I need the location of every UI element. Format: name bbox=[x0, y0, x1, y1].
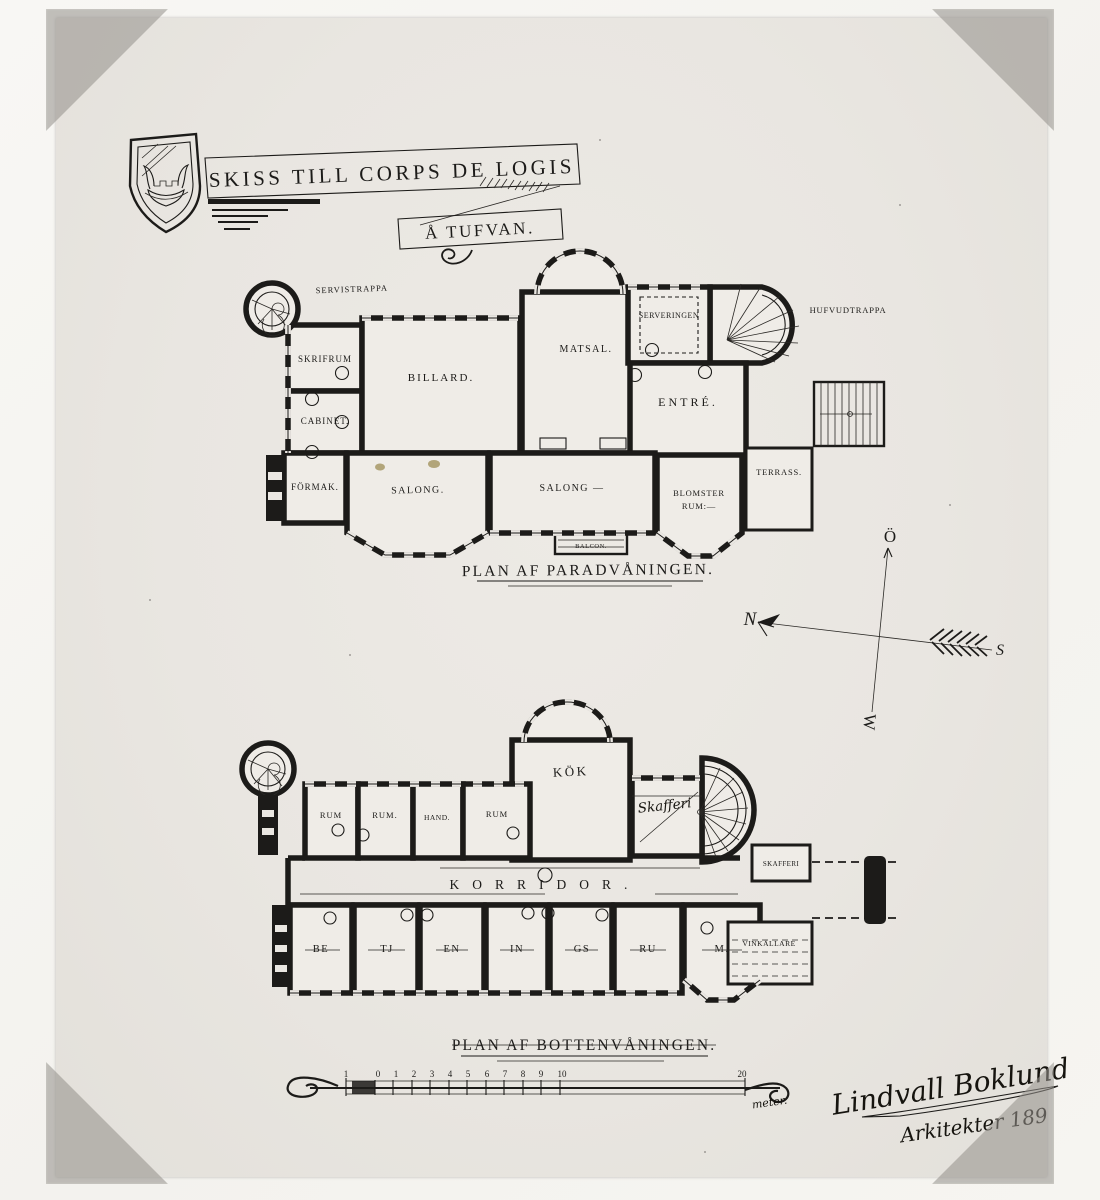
room-label-hand: HAND. bbox=[424, 813, 450, 822]
scale-number: 0 bbox=[376, 1069, 381, 1079]
scale-number: 2 bbox=[412, 1069, 417, 1079]
compass-north: N bbox=[743, 609, 758, 630]
photograph-of-architectural-drawing: SKISS TILL CORPS DE LOGIS Å TUFVAN. bbox=[0, 0, 1100, 1200]
room-label-betjenings-3: EN bbox=[444, 944, 461, 955]
scale-number: 6 bbox=[485, 1069, 490, 1079]
scale-bar: 1 0 1 2 3 4 5 6 7 8 9 10 20 meter. bbox=[288, 1069, 789, 1111]
room-label-korridor: KORRIDOR. bbox=[450, 877, 641, 892]
compass-west: W bbox=[859, 713, 879, 732]
scale-number: 9 bbox=[539, 1069, 544, 1079]
room-label-skrifrum: SKRIFRUM bbox=[298, 354, 352, 364]
room-label-entre: ENTRÉ. bbox=[658, 395, 718, 409]
room-label-betjenings-1: BE bbox=[313, 944, 329, 955]
scale-number: 5 bbox=[466, 1069, 471, 1079]
drawing-subtitle: Å TUFVAN. bbox=[425, 218, 536, 243]
scale-number: 10 bbox=[558, 1069, 568, 1079]
room-label-rum2: RUM. bbox=[372, 810, 398, 820]
room-label-salong-right: SALONG — bbox=[539, 483, 604, 494]
room-label-servistrappa: SERVISTRAPPA bbox=[316, 283, 389, 296]
room-label-vinkallare: VINKÄLLARE bbox=[742, 939, 795, 948]
upper-floor-plan: SERVISTRAPPA SKRIFRUM CABINET. FÖRMAK. B… bbox=[246, 251, 886, 586]
room-label-kok: KÖK bbox=[553, 763, 589, 780]
room-label-betjenings-6: RU bbox=[639, 944, 657, 955]
lower-floor-plan: KÖK Skafferi RUM RUM. HAND. RUM KORRIDOR… bbox=[242, 702, 898, 1061]
scale-number: 1 bbox=[344, 1069, 349, 1079]
room-label-balcon: BALCON. bbox=[575, 543, 607, 550]
subtitle-banner: Å TUFVAN. bbox=[398, 209, 563, 264]
room-label-betjenings-7: M. bbox=[715, 944, 730, 955]
room-label-formak: FÖRMAK. bbox=[291, 482, 339, 492]
scale-number: 20 bbox=[738, 1069, 748, 1079]
room-label-rum1: RUM bbox=[320, 810, 342, 820]
scale-number: 3 bbox=[430, 1069, 435, 1079]
scale-number: 4 bbox=[448, 1069, 453, 1079]
room-label-rum3: RUM bbox=[486, 809, 508, 819]
lower-plan-caption: PLAN AF BOTTENVÅNINGEN. bbox=[452, 1037, 717, 1054]
floor-plan-drawing: SKISS TILL CORPS DE LOGIS Å TUFVAN. bbox=[0, 0, 1100, 1200]
scale-number: 8 bbox=[521, 1069, 526, 1079]
compass-east: Ö bbox=[884, 527, 896, 546]
room-label-skafferi-small: SKAFFERI bbox=[763, 860, 800, 868]
upper-plan-caption: PLAN AF PARADVÅNINGEN. bbox=[462, 561, 715, 580]
compass-rose: N S Ö W bbox=[743, 527, 1004, 732]
room-label-terrass: TERRASS. bbox=[756, 467, 802, 477]
scale-number: 7 bbox=[503, 1069, 508, 1079]
room-label-hufvudtrappa: HUFVUDTRAPPA bbox=[810, 305, 887, 315]
room-label-betjenings-5: GS bbox=[574, 944, 590, 955]
room-label-salong-left: SALONG. bbox=[391, 485, 445, 497]
room-label-serveringen: SERVERINGEN bbox=[639, 311, 699, 320]
title-banner: SKISS TILL CORPS DE LOGIS bbox=[205, 144, 580, 229]
room-label-betjenings-2: TJ bbox=[380, 944, 394, 955]
room-label-blomster-1: BLOMSTER bbox=[673, 488, 725, 498]
coat-of-arms-shield bbox=[130, 134, 200, 232]
compass-south: S bbox=[996, 642, 1004, 659]
room-label-billard: BILLARD. bbox=[408, 372, 474, 384]
room-label-blomster-2: RUM:— bbox=[682, 501, 716, 511]
scale-number: 1 bbox=[394, 1069, 399, 1079]
room-label-matsal: MATSAL. bbox=[559, 344, 612, 355]
room-label-cabinet: CABINET. bbox=[301, 416, 350, 426]
scale-unit: meter. bbox=[751, 1094, 788, 1112]
room-label-betjenings-4: IN bbox=[510, 944, 524, 955]
